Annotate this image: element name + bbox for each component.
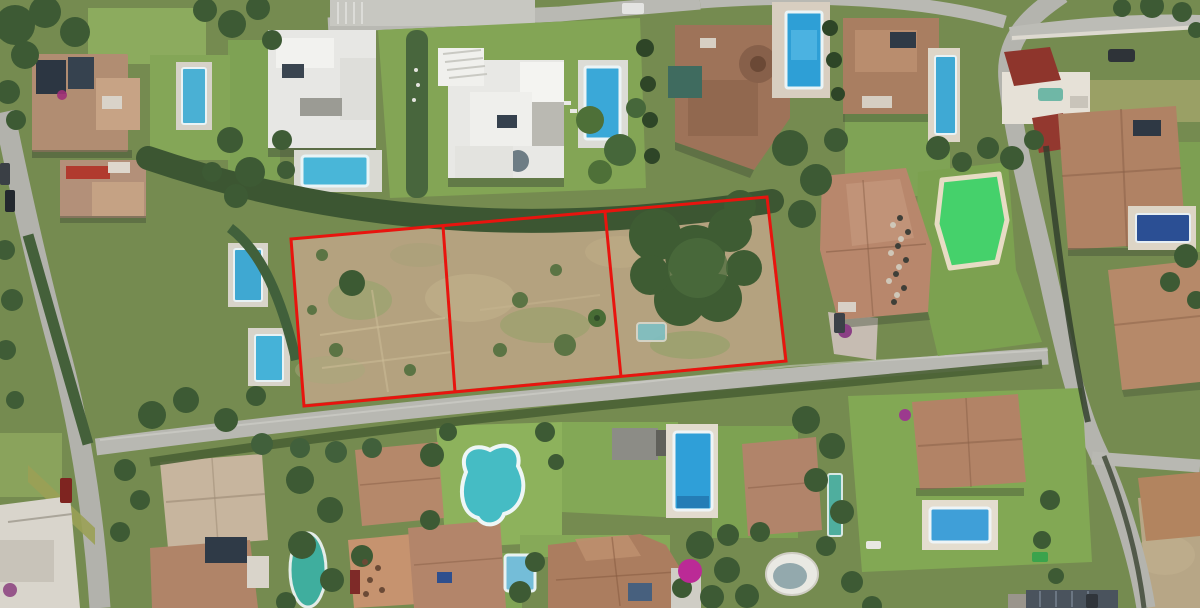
solar-panels — [890, 32, 916, 48]
garden-item — [1032, 552, 1048, 562]
patio-table — [379, 587, 385, 593]
patio-table — [375, 565, 381, 571]
parked-car — [1086, 594, 1098, 608]
pool — [302, 156, 368, 186]
skylight — [628, 583, 652, 601]
garden-structure — [612, 428, 658, 460]
parked-car — [834, 313, 845, 333]
pool — [182, 68, 206, 124]
satellite-image — [0, 0, 1200, 608]
sun-lounger — [895, 243, 901, 249]
parked-car — [5, 190, 15, 212]
sun-lounger — [901, 285, 907, 291]
driveway — [330, 0, 535, 26]
bougainvillea — [678, 559, 702, 583]
white-car — [622, 3, 644, 14]
sun-lounger — [893, 271, 899, 277]
small-spa — [1038, 88, 1063, 101]
patio-table — [363, 591, 369, 597]
hedge-strip — [406, 30, 428, 198]
sun-lounger — [891, 299, 897, 305]
solar-panels — [497, 115, 517, 128]
garden-court — [668, 66, 702, 98]
solar-panels — [36, 60, 66, 94]
sun-lounger — [905, 229, 911, 235]
bougainvillea — [899, 409, 911, 421]
solar-panels — [205, 537, 247, 563]
round-tree — [339, 270, 365, 296]
white-lounger — [866, 541, 881, 549]
dark-suv — [1108, 49, 1135, 62]
sun-lounger — [897, 215, 903, 221]
pool — [930, 508, 990, 542]
bougainvillea — [57, 90, 67, 100]
solar-panels — [437, 572, 452, 583]
red-awning — [66, 166, 110, 179]
green-algae-pool — [937, 174, 1007, 268]
patio-table — [367, 577, 373, 583]
solar-panels — [282, 64, 304, 78]
abandoned-pool — [637, 323, 666, 341]
patio-table — [362, 559, 368, 565]
pool — [255, 335, 283, 381]
sun-lounger — [903, 257, 909, 263]
parked-car — [0, 163, 10, 185]
solar-panels — [68, 57, 94, 89]
bougainvillea — [3, 583, 17, 597]
solar-panels — [1133, 120, 1161, 136]
aerial-scene — [0, 0, 1200, 608]
pool — [1136, 214, 1190, 242]
red-car — [60, 478, 72, 503]
pool — [935, 56, 956, 134]
